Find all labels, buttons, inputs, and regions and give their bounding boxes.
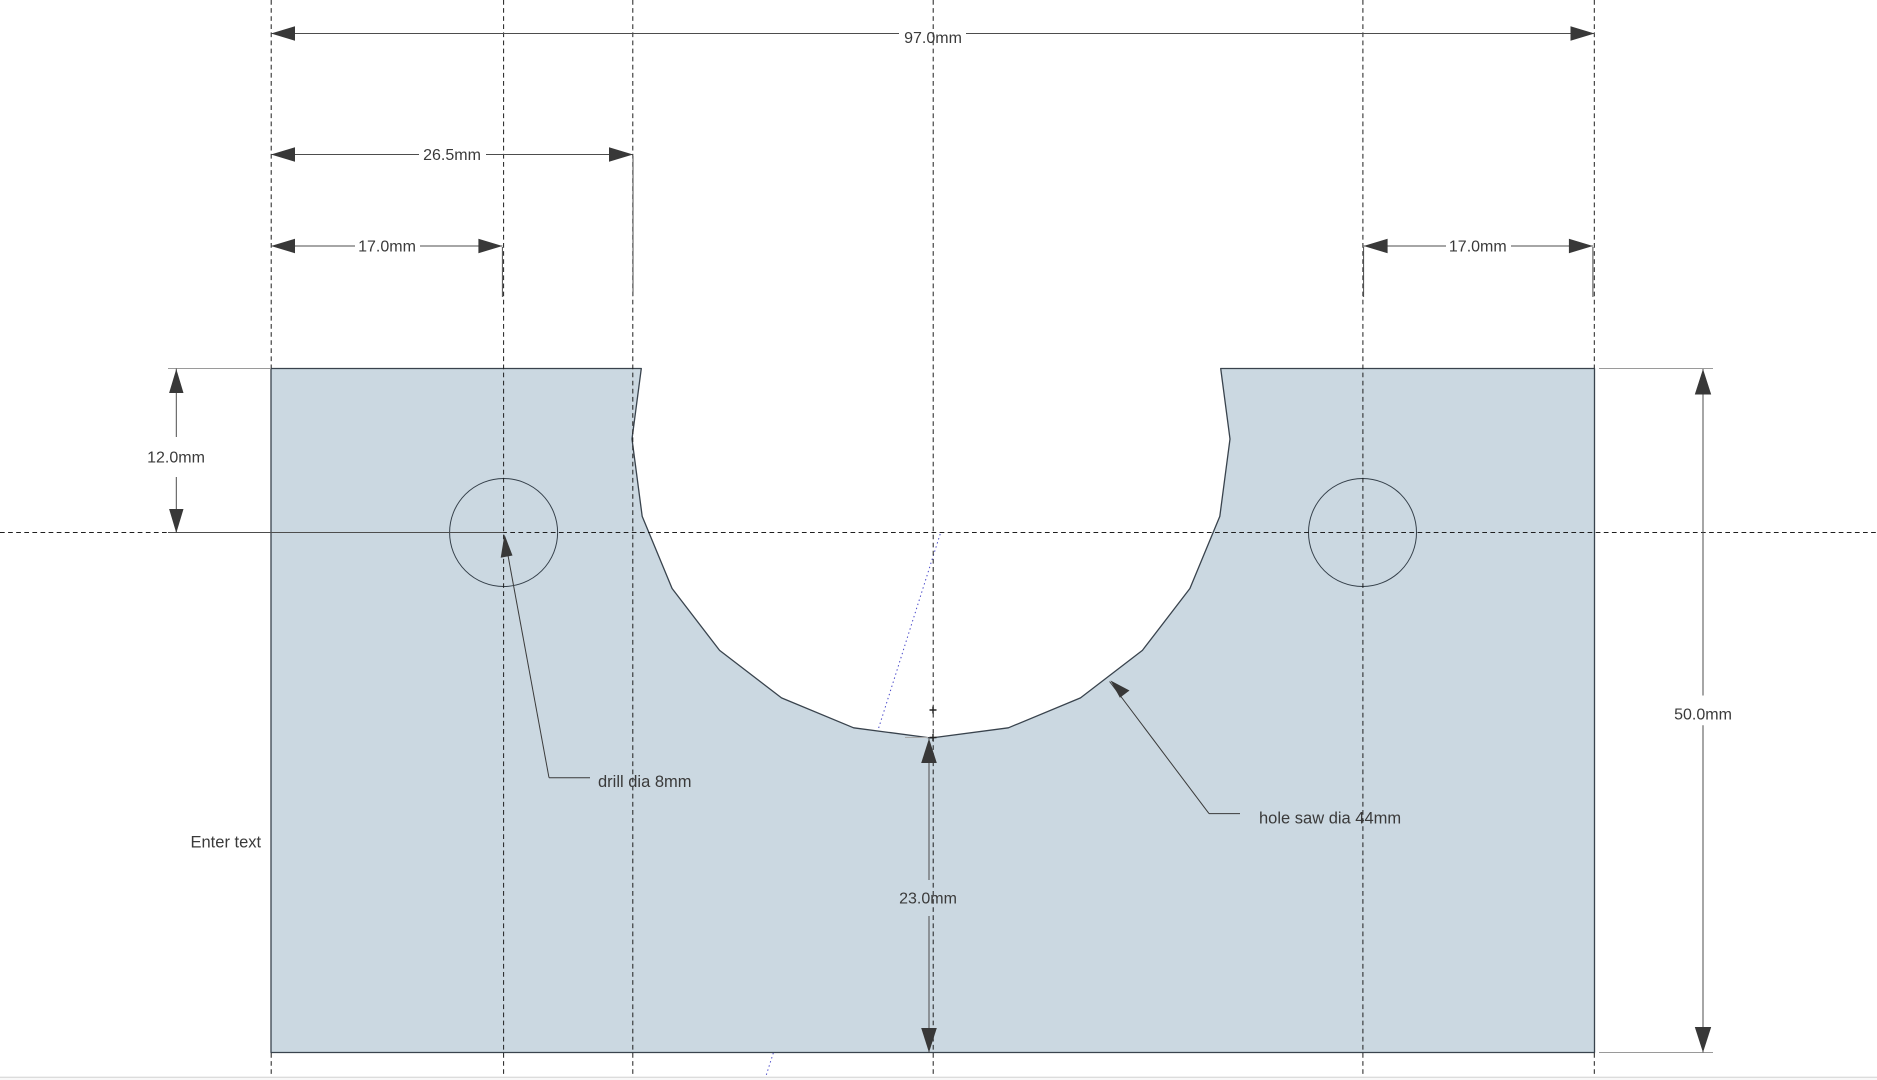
svg-text:17.0mm: 17.0mm xyxy=(1449,239,1507,256)
svg-text:23.0mm: 23.0mm xyxy=(899,891,957,908)
svg-text:drill dia 8mm: drill dia 8mm xyxy=(598,773,692,791)
svg-text:12.0mm: 12.0mm xyxy=(147,450,205,467)
svg-text:26.5mm: 26.5mm xyxy=(423,147,481,164)
svg-text:17.0mm: 17.0mm xyxy=(358,239,416,256)
svg-text:Enter text: Enter text xyxy=(191,834,262,852)
svg-text:97.0mm: 97.0mm xyxy=(904,30,962,47)
svg-text:50.0mm: 50.0mm xyxy=(1674,707,1732,724)
svg-text:hole saw dia 44mm: hole saw dia 44mm xyxy=(1259,810,1401,828)
